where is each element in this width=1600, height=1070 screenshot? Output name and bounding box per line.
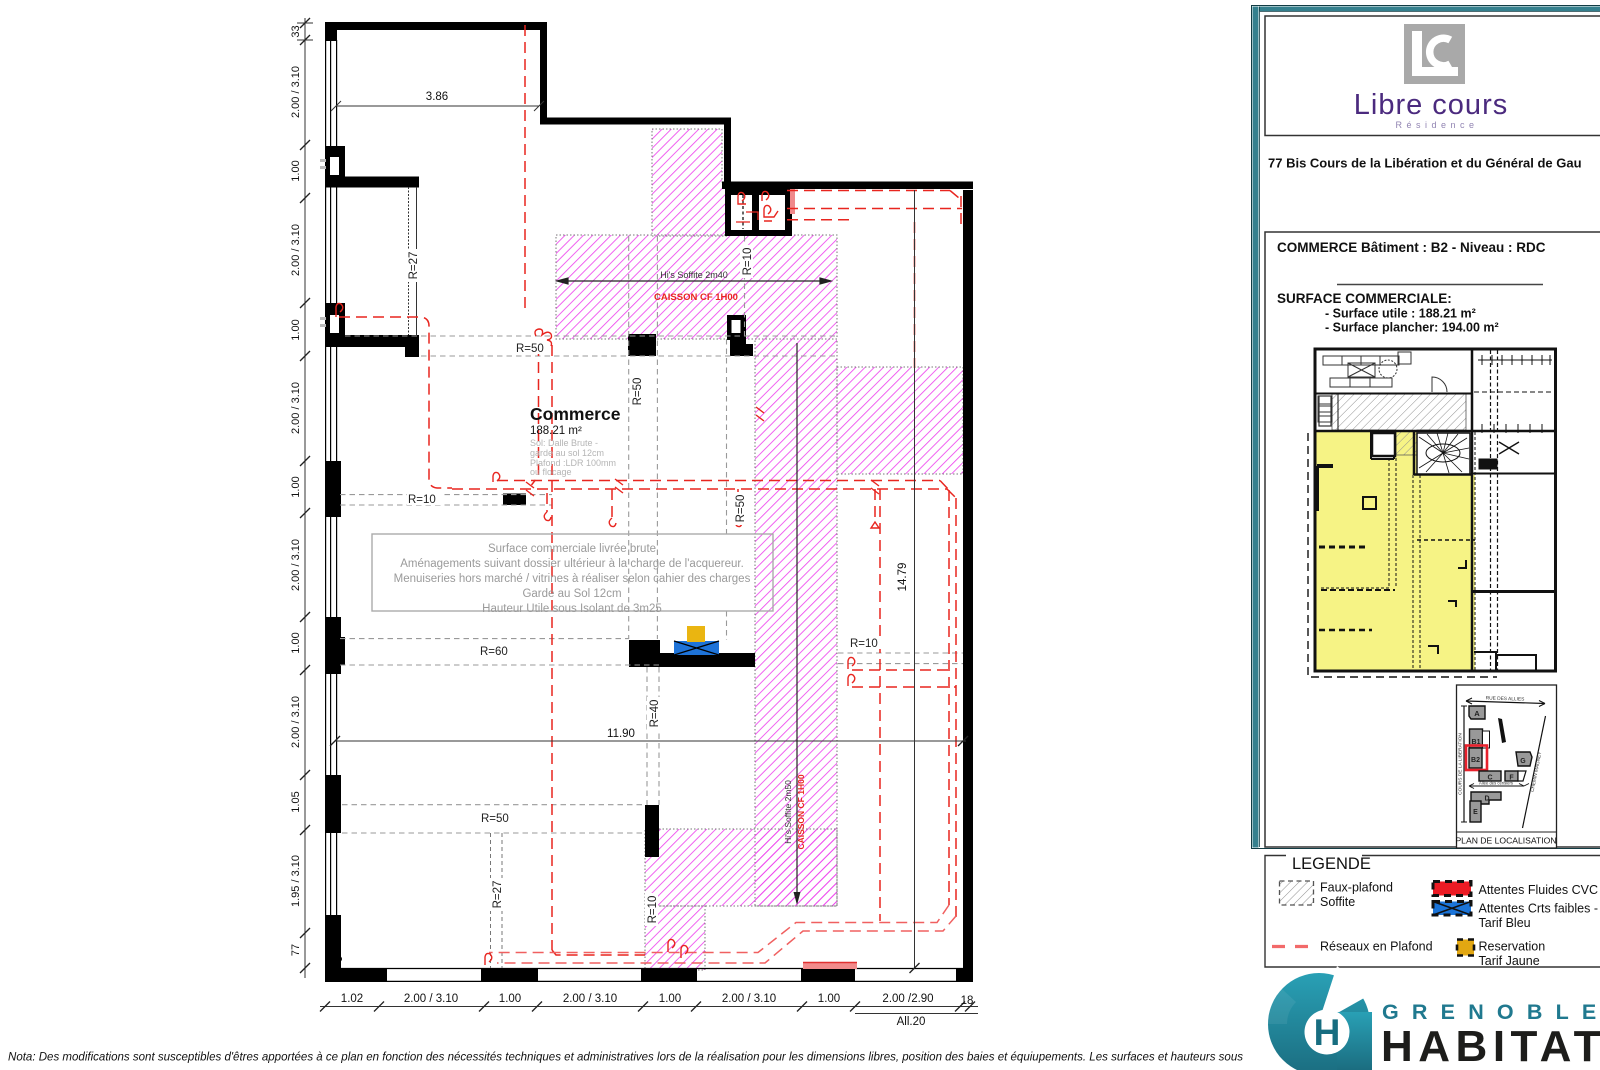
svg-text:2.00 / 3.10: 2.00 / 3.10 xyxy=(290,539,302,591)
svg-text:Hi's Soffite 2m50: Hi's Soffite 2m50 xyxy=(783,780,793,844)
svg-text:- Surface utile : 188.21 m²: - Surface utile : 188.21 m² xyxy=(1325,307,1476,321)
svg-text:Menuiseries hors marché / vitr: Menuiseries hors marché / vitrines à réa… xyxy=(394,573,751,585)
svg-text:33: 33 xyxy=(290,25,302,37)
svg-text:R=27: R=27 xyxy=(408,252,420,280)
svg-text:Attentes Crts faibles -: Attentes Crts faibles - xyxy=(1479,902,1599,916)
svg-text:H: H xyxy=(1314,1012,1341,1053)
svg-text:2.00 / 3.10: 2.00 / 3.10 xyxy=(290,66,302,118)
svg-text:D: D xyxy=(1484,796,1489,803)
svg-text:R=50: R=50 xyxy=(735,495,747,523)
svg-text:2.00 / 3.10: 2.00 / 3.10 xyxy=(404,993,458,1005)
svg-text:1.05: 1.05 xyxy=(290,791,302,812)
svg-text:1.00: 1.00 xyxy=(290,160,302,181)
svg-text:1.00: 1.00 xyxy=(290,632,302,653)
svg-text:2.00 / 3.10: 2.00 / 3.10 xyxy=(290,224,302,276)
svg-text:Surface commerciale livrée bru: Surface commerciale livrée brute xyxy=(488,543,656,555)
svg-text:R=10: R=10 xyxy=(647,896,659,924)
svg-text:C: C xyxy=(1487,775,1492,782)
svg-text:1.95 / 3.10: 1.95 / 3.10 xyxy=(290,855,302,907)
svg-text:R=10: R=10 xyxy=(742,248,754,276)
svg-text:E: E xyxy=(1473,809,1478,816)
svg-text:CAISSON CF 1H00: CAISSON CF 1H00 xyxy=(654,292,738,303)
svg-text:Libre cours: Libre cours xyxy=(1354,89,1508,121)
svg-text:Tarif Jaune: Tarif Jaune xyxy=(1479,954,1540,968)
svg-text:garde au sol 12cm: garde au sol 12cm xyxy=(530,448,604,458)
svg-text:B2: B2 xyxy=(1471,757,1480,764)
svg-text:2.00 /2.90: 2.00 /2.90 xyxy=(882,993,933,1005)
svg-text:COURS DE LA LIBERATION: COURS DE LA LIBERATION xyxy=(1458,733,1464,795)
svg-text:11.90: 11.90 xyxy=(607,728,635,740)
svg-text:R=50: R=50 xyxy=(481,813,509,825)
svg-text:CAISSON CF 1H00: CAISSON CF 1H00 xyxy=(796,774,806,849)
svg-text:R=50: R=50 xyxy=(516,343,544,355)
svg-text:Hi's Soffite 2m40: Hi's Soffite 2m40 xyxy=(660,270,728,280)
svg-text:18: 18 xyxy=(961,995,974,1007)
svg-text:14.79: 14.79 xyxy=(897,563,909,592)
svg-text:2.00 / 3.10: 2.00 / 3.10 xyxy=(290,382,302,434)
svg-text:2.00 / 3.10: 2.00 / 3.10 xyxy=(722,993,776,1005)
svg-text:Sol: Dalle Brute -: Sol: Dalle Brute - xyxy=(530,438,598,448)
svg-text:HABITAT: HABITAT xyxy=(1381,1022,1600,1070)
svg-text:1.02: 1.02 xyxy=(341,993,363,1005)
svg-text:LEGENDE: LEGENDE xyxy=(1292,855,1371,873)
svg-text:188.21 m²: 188.21 m² xyxy=(530,425,582,437)
svg-text:PLAN DE LOCALISATION: PLAN DE LOCALISATION xyxy=(1455,836,1556,846)
svg-text:All.20: All.20 xyxy=(897,1016,926,1028)
svg-text:R=60: R=60 xyxy=(480,646,508,658)
svg-text:1.00: 1.00 xyxy=(818,993,840,1005)
svg-text:Attentes Fluides CVC: Attentes Fluides CVC xyxy=(1479,883,1599,897)
svg-text:ou flocage: ou flocage xyxy=(530,467,572,477)
svg-text:A: A xyxy=(1474,709,1480,718)
svg-text:Nota: Des modifications sont s: Nota: Des modifications sont susceptible… xyxy=(8,1050,1243,1064)
svg-text:R=10: R=10 xyxy=(850,638,878,650)
svg-text:1.00: 1.00 xyxy=(659,993,681,1005)
svg-text:1.00: 1.00 xyxy=(290,319,302,340)
svg-text:Tarif Bleu: Tarif Bleu xyxy=(1479,916,1531,930)
svg-text:R=40: R=40 xyxy=(649,700,661,728)
svg-text:F: F xyxy=(1509,775,1514,782)
svg-text:GRENOBLE: GRENOBLE xyxy=(1382,1000,1600,1024)
svg-text:Garde au Sol 12cm: Garde au Sol 12cm xyxy=(522,588,621,600)
svg-text:R=10: R=10 xyxy=(408,494,436,506)
svg-text:Reservation: Reservation xyxy=(1479,940,1546,954)
svg-text:G: G xyxy=(1520,758,1526,765)
svg-text:Aménagements suivant dossier u: Aménagements suivant dossier ultérieur à… xyxy=(400,558,744,570)
svg-text:2.00 / 3.10: 2.00 / 3.10 xyxy=(563,993,617,1005)
svg-text:1.00: 1.00 xyxy=(499,993,521,1005)
svg-text:Résidence: Résidence xyxy=(1395,120,1478,130)
svg-text:SURFACE COMMERCIALE:: SURFACE COMMERCIALE: xyxy=(1277,291,1452,306)
svg-text:Hauteur Utile sous Isolant de: Hauteur Utile sous Isolant de 3m25 xyxy=(482,603,662,615)
svg-text:- Surface plancher: 194.00 m²: - Surface plancher: 194.00 m² xyxy=(1325,321,1499,335)
svg-text:3.86: 3.86 xyxy=(426,91,448,103)
svg-text:Soffite: Soffite xyxy=(1320,895,1355,909)
svg-text:COMMERCE Bâtiment : B2 - Nivea: COMMERCE Bâtiment : B2 - Niveau : RDC xyxy=(1277,240,1546,255)
svg-text:2.00 / 3.10: 2.00 / 3.10 xyxy=(290,696,302,748)
svg-text:Commerce: Commerce xyxy=(530,404,621,424)
svg-text:Faux-plafond: Faux-plafond xyxy=(1320,881,1393,895)
svg-text:R=27: R=27 xyxy=(492,881,504,909)
svg-text:77 Bis Cours de la Libération: 77 Bis Cours de la Libération et du Géné… xyxy=(1268,156,1582,171)
svg-text:Réseaux en Plafond: Réseaux en Plafond xyxy=(1320,940,1433,954)
svg-text:77: 77 xyxy=(290,944,302,956)
svg-text:1.00: 1.00 xyxy=(290,476,302,497)
svg-text:R=50: R=50 xyxy=(632,378,644,406)
